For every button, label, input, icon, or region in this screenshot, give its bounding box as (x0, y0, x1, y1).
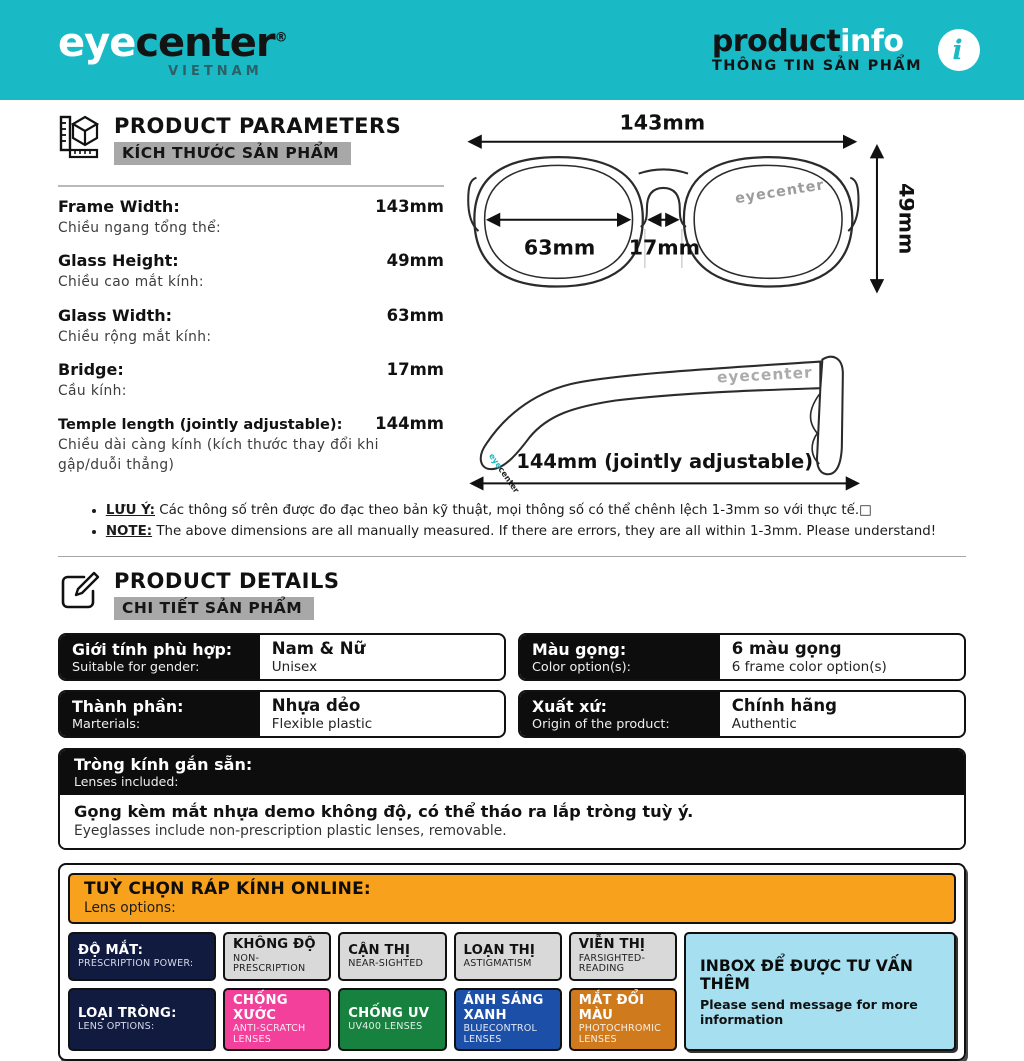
divider (58, 556, 966, 558)
option-chip-anti-scratch[interactable]: CHỐNG XƯỚC ANTI-SCRATCH LENSES (223, 988, 331, 1051)
option-chip-astigmatism[interactable]: LOẠN THỊ ASTIGMATISM (454, 932, 562, 980)
option-chip-farsighted[interactable]: VIỄN THỊ FARSIGHTED-READING (569, 932, 677, 980)
param-row-glass-width: Glass Width: 63mm Chiều rộng mắt kính: (58, 306, 444, 347)
param-value: 143mm (375, 197, 444, 216)
option-chip-uv400[interactable]: CHỐNG UV UV400 LENSES (338, 988, 446, 1051)
details-grid: Giới tính phù hợp: Suitable for gender: … (58, 633, 966, 738)
logo-text-center: center (135, 20, 274, 66)
option-chip-bluecontrol[interactable]: ÁNH SÁNG XANH BLUECONTROL LENSES (454, 988, 562, 1051)
title-subtitle: THÔNG TIN SẢN PHẨM (712, 59, 922, 74)
page-title: productinfo THÔNG TIN SẢN PHẨM (712, 26, 922, 75)
front-watermark: eyecenter (734, 177, 826, 207)
param-value: 49mm (387, 251, 444, 270)
inbox-cta[interactable]: INBOX ĐỂ ĐƯỢC TƯ VẤN THÊM Please send me… (684, 932, 956, 1051)
title-info: info (840, 24, 903, 59)
param-row-bridge: Bridge: 17mm Cầu kính: (58, 360, 444, 401)
param-row-frame-width: Frame Width: 143mm Chiều ngang tổng thể: (58, 197, 444, 238)
option-chip-photochromic[interactable]: MẮT ĐỔI MÀU PHOTOCHROMIC LENSES (569, 988, 677, 1051)
product-details-section-head: PRODUCT DETAILS CHI TIẾT SẢN PHẨM (58, 569, 966, 620)
edit-pencil-icon (58, 569, 100, 613)
section-subtitle-details: CHI TIẾT SẢN PHẨM (114, 597, 314, 620)
param-value: 63mm (387, 306, 444, 325)
brand-logo: eyecenter® VIETNAM (58, 23, 287, 78)
lens-options-header: TUỲ CHỌN RÁP KÍNH ONLINE: Lens options: (68, 873, 956, 924)
lens-options-box: TUỲ CHỌN RÁP KÍNH ONLINE: Lens options: … (58, 863, 966, 1061)
label-chip-prescription-power: ĐỘ MẮT: PRESCRIPTION POWER: (68, 932, 216, 980)
detail-cell-color-options: Màu gọng: Color option(s): 6 màu gọng 6 … (518, 633, 966, 681)
lenses-included-label: Tròng kính gắn sẵn: (74, 755, 950, 774)
divider (58, 185, 444, 187)
title-product: product (712, 24, 840, 59)
header-bar: eyecenter® VIETNAM productinfo THÔNG TIN… (0, 0, 1024, 100)
param-row-temple-length: Temple length (jointly adjustable): 144m… (58, 414, 444, 475)
label-chip-lens-options: LOẠI TRÒNG: LENS OPTIONS: (68, 988, 216, 1051)
front-width-label: 143mm (619, 114, 705, 134)
logo-text-eye: eye (58, 20, 135, 66)
section-title-details: PRODUCT DETAILS (114, 569, 340, 593)
param-sublabel: Chiều rộng mắt kính: (58, 328, 444, 347)
param-sublabel: Chiều dài càng kính (kích thước thay đổi… (58, 436, 444, 475)
param-sublabel: Chiều cao mắt kính: (58, 273, 444, 292)
param-label: Glass Width: (58, 306, 172, 325)
section-title-parameters: PRODUCT PARAMETERS (114, 114, 401, 138)
param-row-glass-height: Glass Height: 49mm Chiều cao mắt kính: (58, 251, 444, 292)
note-english: NOTE: The above dimensions are all manua… (106, 521, 936, 542)
info-icon: i (938, 29, 980, 71)
glasses-side-diagram: eyecenter eyecenter 144mm (jointly adjus… (462, 312, 892, 492)
param-label: Temple length (jointly adjustable): (58, 416, 342, 433)
param-value: 17mm (387, 360, 444, 379)
logo-subtitle: VIETNAM (58, 65, 287, 78)
detail-cell-materials: Thành phần: Marterials: Nhựa dẻo Flexibl… (58, 690, 506, 738)
detail-cell-gender: Giới tính phù hợp: Suitable for gender: … (58, 633, 506, 681)
note-luu-y: LƯU Ý: Các thông số trên được đo đạc the… (106, 500, 936, 521)
registered-mark: ® (275, 30, 287, 45)
lens-width-label: 63mm (524, 236, 595, 260)
lenses-included-value-sub: Eyeglasses include non-prescription plas… (74, 823, 950, 839)
param-sublabel: Cầu kính: (58, 382, 444, 401)
ruler-box-icon (58, 114, 100, 160)
section-subtitle-parameters: KÍCH THƯỚC SẢN PHẨM (114, 142, 351, 165)
lenses-included-value: Gọng kèm mắt nhựa demo không độ, có thể … (74, 802, 950, 821)
option-chip-non-prescription[interactable]: KHÔNG ĐỘ NON-PRESCRIPTION (223, 932, 331, 980)
detail-cell-origin: Xuất xứ: Origin of the product: Chính hã… (518, 690, 966, 738)
lenses-included-sublabel: Lenses included: (74, 774, 950, 789)
temple-length-label: 144mm (jointly adjustable) (516, 450, 813, 473)
param-value: 144mm (375, 414, 444, 433)
param-label: Frame Width: (58, 197, 180, 216)
measurement-notes: LƯU Ý: Các thông số trên được đo đạc the… (88, 500, 936, 543)
glasses-front-diagram: 143mm 63mm (462, 114, 914, 304)
param-label: Bridge: (58, 360, 124, 379)
product-parameters-section: PRODUCT PARAMETERS KÍCH THƯỚC SẢN PHẨM F… (58, 114, 966, 492)
param-sublabel: Chiều ngang tổng thể: (58, 219, 444, 238)
param-label: Glass Height: (58, 251, 179, 270)
lenses-included-box: Tròng kính gắn sẵn: Lenses included: Gọn… (58, 748, 966, 850)
front-height-label: 49mm (895, 183, 914, 254)
bridge-label: 17mm (629, 236, 700, 260)
option-chip-near-sighted[interactable]: CẬN THỊ NEAR-SIGHTED (338, 932, 446, 980)
info-icon-glyph: i (952, 37, 965, 64)
